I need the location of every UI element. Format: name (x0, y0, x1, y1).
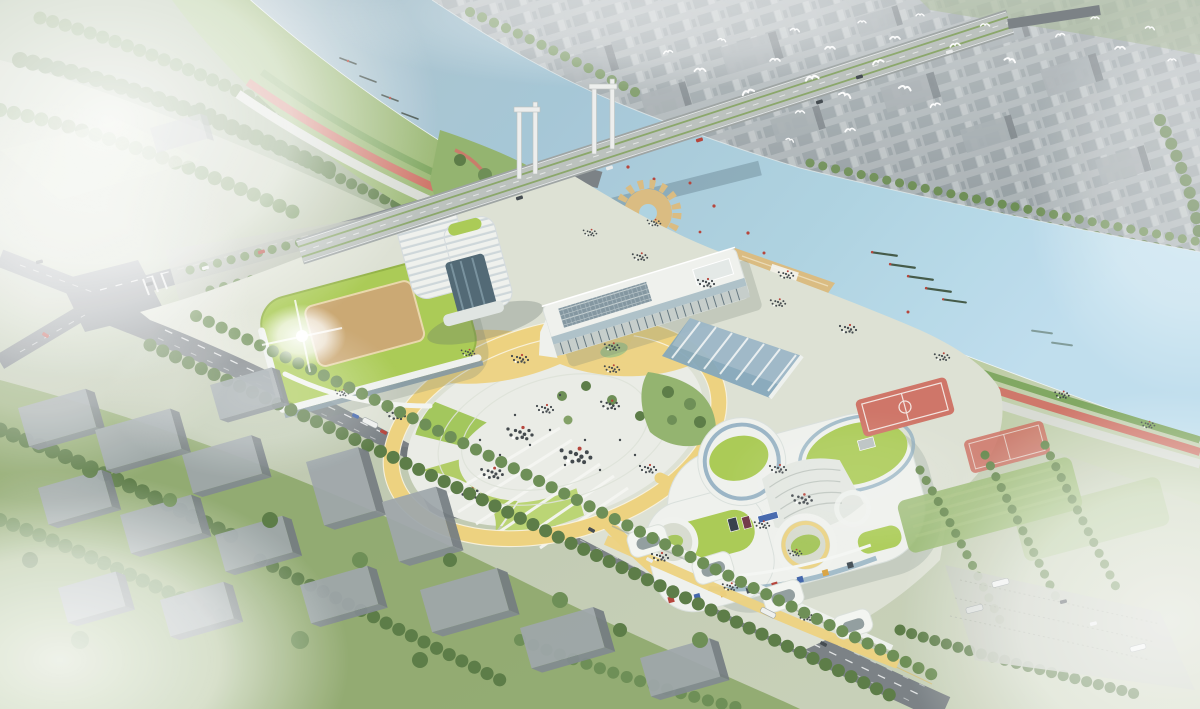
fog-overlays (0, 0, 1200, 709)
scene-canvas (0, 0, 1200, 709)
architectural-rendering: Hazy daylight aerial (bird's-eye) archit… (0, 0, 1200, 709)
